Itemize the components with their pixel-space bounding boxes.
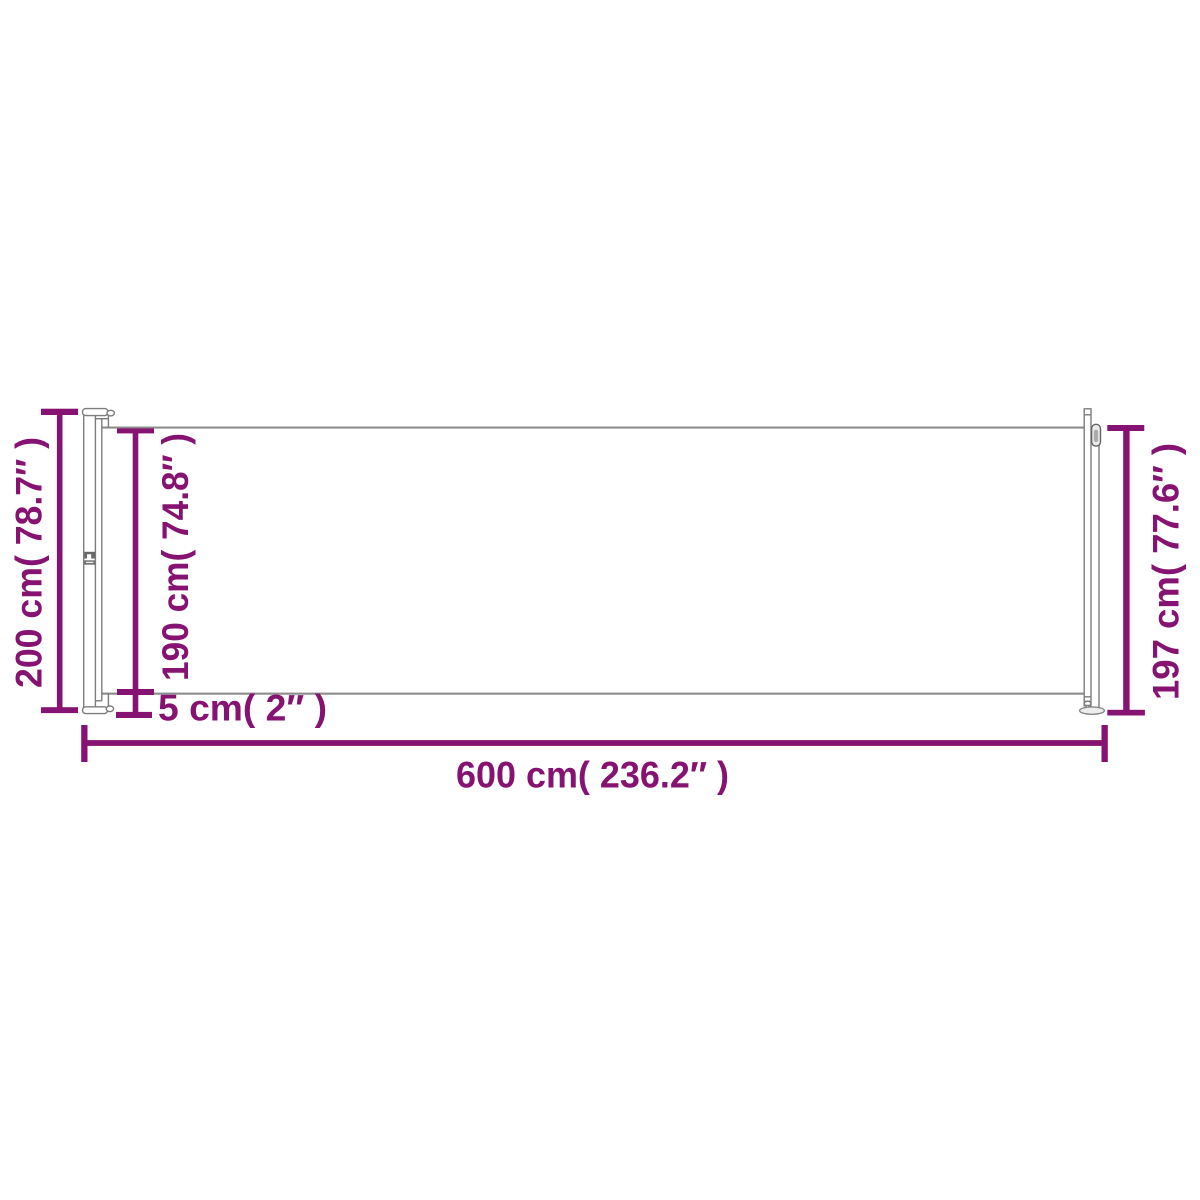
svg-text:197 cm( 77.6″ ): 197 cm( 77.6″ ) — [1146, 443, 1187, 700]
svg-text:5 cm( 2″ ): 5 cm( 2″ ) — [158, 688, 327, 729]
svg-text:190 cm( 74.8″ ): 190 cm( 74.8″ ) — [155, 433, 196, 681]
svg-text:200 cm( 78.7″ ): 200 cm( 78.7″ ) — [8, 437, 49, 688]
svg-text:600 cm( 236.2″ ): 600 cm( 236.2″ ) — [456, 755, 729, 796]
